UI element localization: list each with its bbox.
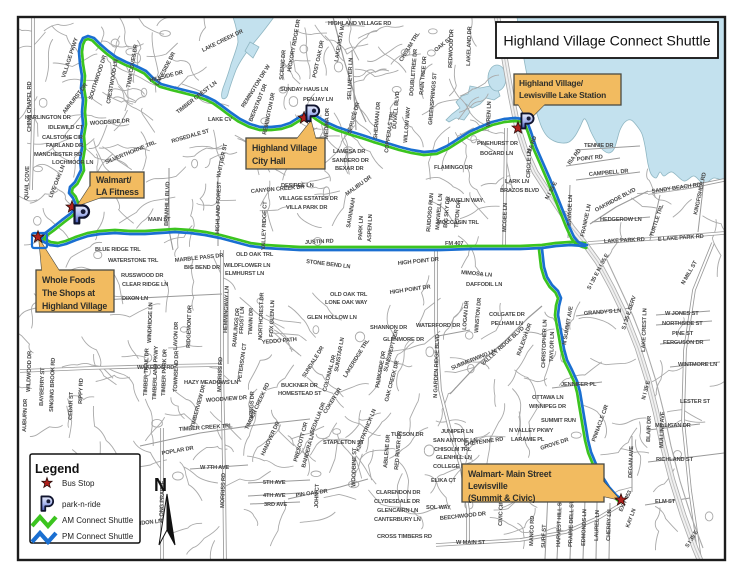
svg-text:FERGUSON DR: FERGUSON DR: [663, 340, 703, 346]
svg-text:DEGAN AVE: DEGAN AVE: [628, 446, 635, 478]
svg-text:HIGHLAND VILLAGE RD: HIGHLAND VILLAGE RD: [328, 21, 391, 27]
svg-text:3RD AVE: 3RD AVE: [264, 502, 287, 508]
svg-text:BIG BEND DR: BIG BEND DR: [184, 265, 220, 271]
svg-text:CEDAR ST: CEDAR ST: [68, 391, 75, 420]
svg-text:W 7TH AVE: W 7TH AVE: [200, 465, 229, 471]
svg-text:CLARENDON DR: CLARENDON DR: [376, 490, 420, 496]
svg-text:MAIN ST: MAIN ST: [148, 217, 171, 223]
svg-text:HOMESTEAD ST: HOMESTEAD ST: [278, 391, 322, 397]
svg-text:BLUE RIDGE TRL: BLUE RIDGE TRL: [95, 247, 141, 253]
svg-text:SURF ST: SURF ST: [541, 524, 548, 548]
svg-text:OLD OAK TRL: OLD OAK TRL: [236, 252, 274, 258]
svg-text:DIXON LN: DIXON LN: [122, 296, 148, 302]
svg-text:CHISOLM TRL: CHISOLM TRL: [434, 447, 472, 453]
svg-text:ELM ST: ELM ST: [655, 499, 676, 505]
svg-text:RUSSWOOD DR: RUSSWOOD DR: [121, 273, 163, 279]
svg-text:WILDFLOWER LN: WILDFLOWER LN: [224, 263, 270, 269]
svg-text:PELHAM LN: PELHAM LN: [491, 321, 523, 327]
svg-text:LONE OAK WAY: LONE OAK WAY: [325, 300, 368, 306]
svg-text:(Summit & Civic): (Summit & Civic): [468, 493, 535, 503]
svg-text:MANCHESTER RD: MANCHESTER RD: [34, 152, 82, 158]
svg-text:CLEAR RIDGE LN: CLEAR RIDGE LN: [122, 282, 168, 288]
svg-text:The Shops at: The Shops at: [42, 288, 95, 298]
svg-text:CIVIC CIR: CIVIC CIR: [498, 501, 505, 526]
svg-text:SANDERO DR: SANDERO DR: [332, 158, 369, 164]
svg-text:LARK LN: LARK LN: [505, 179, 529, 185]
svg-text:MORRISS RD: MORRISS RD: [220, 473, 227, 508]
svg-text:RIPPY RD: RIPPY RD: [78, 378, 85, 404]
svg-text:N: N: [154, 475, 167, 495]
svg-text:W MAIN ST: W MAIN ST: [456, 540, 486, 546]
svg-text:Legend: Legend: [35, 462, 79, 476]
svg-text:PENJAY LN: PENJAY LN: [303, 97, 333, 103]
svg-text:CANTERBURY LN: CANTERBURY LN: [374, 517, 421, 523]
svg-text:N VALLEY PKWY: N VALLEY PKWY: [509, 428, 554, 434]
svg-text:HEDGEROW LN: HEDGEROW LN: [600, 217, 642, 223]
svg-text:JAVELIN WAY: JAVELIN WAY: [447, 198, 483, 204]
svg-text:QUAIL COVE: QUAIL COVE: [24, 166, 31, 200]
svg-text:Walmart/: Walmart/: [96, 175, 132, 185]
svg-text:PARK LN: PARK LN: [358, 216, 365, 240]
svg-text:DAFFODIL LN: DAFFODIL LN: [466, 282, 502, 288]
svg-text:Highland Village Connect Shutt: Highland Village Connect Shuttle: [503, 34, 710, 50]
svg-text:BLAIR DR: BLAIR DR: [646, 416, 653, 442]
svg-text:AUBURN DR: AUBURN DR: [22, 399, 29, 432]
svg-text:CLYDESDALE DR: CLYDESDALE DR: [374, 499, 420, 505]
svg-text:WATERFORD DR: WATERFORD DR: [416, 323, 460, 329]
svg-text:LAKE CV: LAKE CV: [208, 117, 232, 123]
svg-text:ELMHURST LN: ELMHURST LN: [225, 271, 264, 277]
svg-text:MORRISS RD: MORRISS RD: [217, 357, 224, 392]
svg-text:4TH AVE: 4TH AVE: [263, 493, 286, 499]
svg-text:BRAZOS BLVD: BRAZOS BLVD: [500, 188, 539, 194]
svg-text:IDLEWILD CT: IDLEWILD CT: [48, 125, 84, 131]
svg-text:JUNIPER LN: JUNIPER LN: [441, 429, 473, 435]
svg-text:WATERSTONE TRL: WATERSTONE TRL: [108, 258, 159, 264]
svg-text:MILLIGAN DR: MILLIGAN DR: [655, 423, 691, 429]
svg-text:FAIRLAND DR: FAIRLAND DR: [46, 143, 83, 149]
svg-text:LAVON DR: LAVON DR: [173, 322, 180, 350]
svg-text:ASPEN LN: ASPEN LN: [367, 214, 374, 242]
svg-text:GLEN HOLLOW LN: GLEN HOLLOW LN: [307, 315, 357, 321]
svg-text:LESTER ST: LESTER ST: [680, 399, 711, 405]
svg-text:MULLINS AVE: MULLINS AVE: [659, 411, 666, 448]
svg-text:AM Connect Shuttle: AM Connect Shuttle: [62, 516, 134, 525]
svg-text:VILLAGE ESTATES DR: VILLAGE ESTATES DR: [279, 196, 338, 202]
svg-text:SAVAGE LN: SAVAGE LN: [567, 195, 574, 226]
svg-text:Bus Stop: Bus Stop: [62, 479, 95, 488]
svg-text:TAYLOR LN: TAYLOR LN: [549, 332, 556, 362]
svg-text:CALSTONE CIR: CALSTONE CIR: [42, 135, 83, 141]
svg-text:Walmart- Main Street: Walmart- Main Street: [468, 469, 551, 479]
svg-text:ELIKA CT: ELIKA CT: [431, 478, 456, 484]
svg-text:HAZY MEADOWS LN: HAZY MEADOWS LN: [184, 380, 238, 386]
svg-text:SUNDAY HAUS LN: SUNDAY HAUS LN: [280, 87, 328, 93]
svg-text:PINE ST: PINE ST: [672, 331, 694, 337]
svg-text:WINTMORE LN: WINTMORE LN: [678, 362, 717, 368]
svg-text:FOX GLEN LN: FOX GLEN LN: [269, 300, 276, 337]
svg-text:PM Connect Shuttle: PM Connect Shuttle: [62, 532, 134, 541]
svg-text:JENNIFER PL: JENNIFER PL: [561, 382, 597, 388]
svg-text:HARLINGTON DR: HARLINGTON DR: [25, 115, 71, 121]
svg-text:CHINN CHAPEL RD: CHINN CHAPEL RD: [27, 82, 33, 132]
svg-text:BEXAR DR: BEXAR DR: [335, 166, 364, 172]
svg-text:OTTAWA LN: OTTAWA LN: [532, 395, 564, 401]
svg-text:GLENMORE DR: GLENMORE DR: [383, 337, 424, 343]
svg-text:GLENCAIRN LN: GLENCAIRN LN: [377, 508, 418, 514]
svg-text:park-n-ride: park-n-ride: [62, 500, 101, 509]
svg-text:Lewisville: Lewisville: [468, 481, 508, 491]
svg-text:COLGATE DR: COLGATE DR: [489, 312, 525, 318]
svg-text:SAN ANTONE LN: SAN ANTONE LN: [433, 438, 478, 444]
svg-text:SHANNON DR: SHANNON DR: [370, 325, 407, 331]
svg-text:EDMONDS LN: EDMONDS LN: [581, 509, 588, 546]
svg-text:WINNIPEG DR: WINNIPEG DR: [529, 404, 566, 410]
svg-text:BUCKNER DR: BUCKNER DR: [281, 383, 318, 389]
svg-text:5TH AVE: 5TH AVE: [263, 480, 286, 486]
svg-text:TENNIE DR: TENNIE DR: [584, 143, 613, 149]
svg-text:LARAMIE PL: LARAMIE PL: [511, 437, 545, 443]
svg-text:MCGEE LN: MCGEE LN: [502, 203, 509, 232]
svg-text:LAMESA DR: LAMESA DR: [333, 149, 365, 155]
svg-text:LOCHMOOR LN: LOCHMOOR LN: [52, 160, 93, 166]
svg-text:SUMMIT RUN: SUMMIT RUN: [541, 418, 576, 424]
svg-text:Whole Foods: Whole Foods: [42, 275, 95, 285]
svg-text:LA Fitness: LA Fitness: [96, 187, 139, 197]
svg-text:OLD OAK TRL: OLD OAK TRL: [330, 292, 368, 298]
svg-text:MEDINA DR: MEDINA DR: [324, 108, 331, 139]
svg-text:NORTHSIDE ST: NORTHSIDE ST: [662, 321, 703, 327]
svg-text:GLENHILL LN: GLENHILL LN: [436, 455, 472, 461]
svg-text:Highland Village: Highland Village: [252, 143, 317, 153]
svg-text:WREN LN: WREN LN: [486, 101, 493, 127]
svg-text:City Hall: City Hall: [252, 156, 285, 166]
svg-text:MANCO RD: MANCO RD: [529, 516, 536, 546]
svg-text:FROST LN: FROST LN: [239, 307, 246, 334]
svg-text:Highland Village/: Highland Village/: [519, 78, 584, 88]
svg-text:Highland Village: Highland Village: [42, 301, 107, 311]
svg-text:SOL WAY: SOL WAY: [426, 505, 451, 511]
svg-text:FM 407: FM 407: [445, 241, 463, 247]
svg-text:Lewisville Lake Station: Lewisville Lake Station: [519, 90, 606, 100]
svg-text:W JONES ST: W JONES ST: [665, 311, 699, 317]
svg-text:RICHLAND ST: RICHLAND ST: [656, 457, 694, 463]
svg-text:FLAMINGO DR: FLAMINGO DR: [434, 165, 473, 171]
svg-text:CHERRY LN: CHERRY LN: [606, 509, 613, 541]
svg-text:TWAIN DR: TWAIN DR: [248, 308, 255, 335]
svg-text:BOGARD LN: BOGARD LN: [480, 151, 513, 157]
svg-text:PINEHURST DR: PINEHURST DR: [477, 141, 518, 147]
svg-text:CROSS TIMBERS RD: CROSS TIMBERS RD: [377, 534, 432, 540]
svg-text:LAUREL LN: LAUREL LN: [594, 510, 601, 541]
svg-text:VILLA PARK DR: VILLA PARK DR: [286, 205, 327, 211]
